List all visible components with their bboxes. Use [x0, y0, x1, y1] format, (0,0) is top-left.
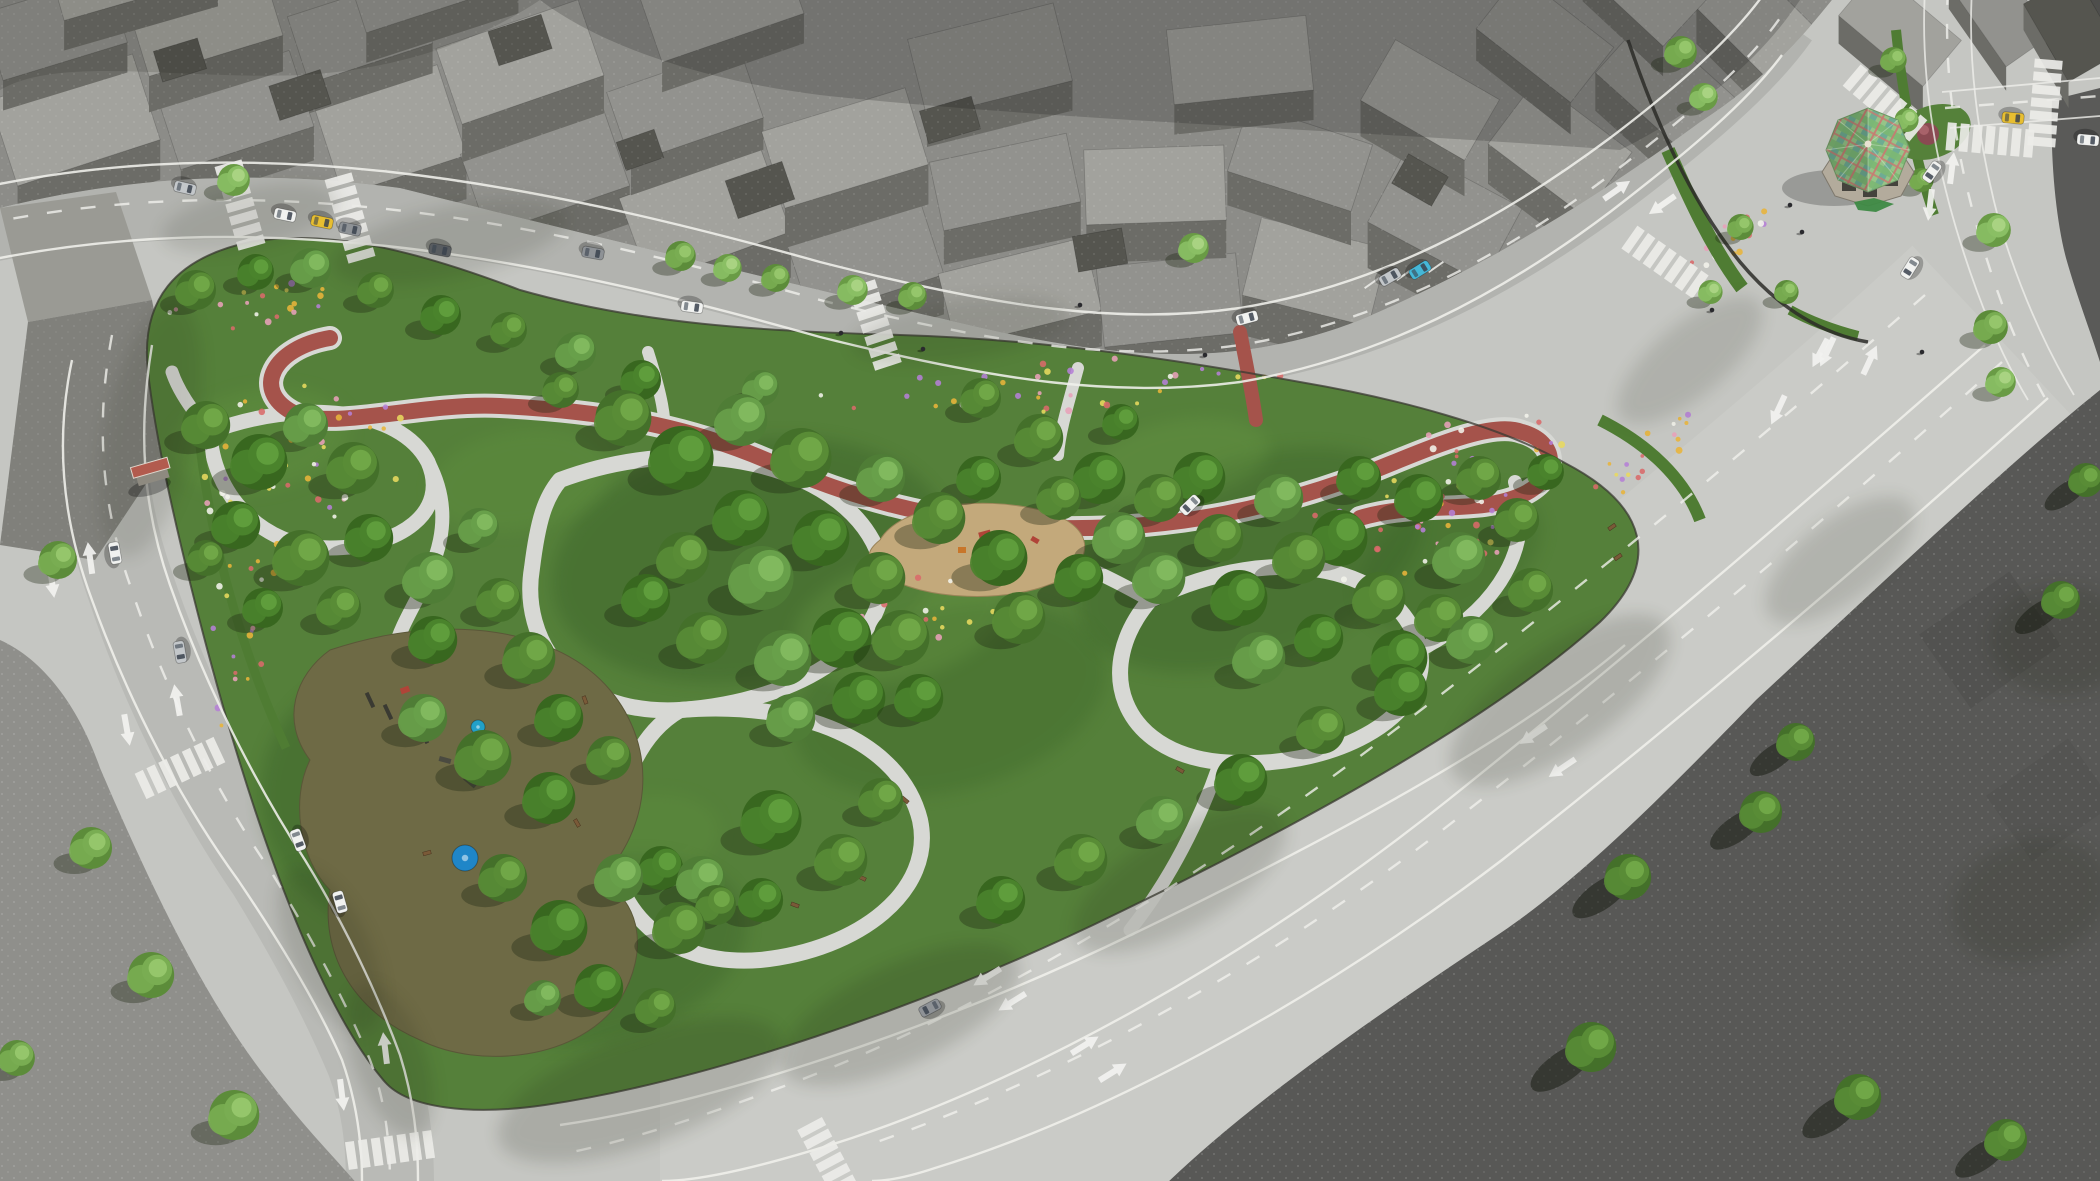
flower — [243, 399, 247, 403]
flower — [312, 462, 316, 466]
tree-highlight — [936, 500, 957, 521]
flower — [1620, 477, 1625, 482]
tree-highlight — [789, 701, 808, 720]
flower — [935, 634, 942, 641]
flower — [1614, 473, 1618, 477]
tree-highlight — [477, 514, 493, 530]
flower — [1672, 422, 1676, 426]
flower — [320, 287, 324, 291]
flower — [932, 617, 937, 622]
tree-highlight — [758, 556, 784, 582]
flower — [1608, 462, 1612, 466]
tree-highlight — [851, 280, 863, 292]
tree-highlight — [337, 593, 355, 611]
flower — [1761, 208, 1767, 214]
tree-highlight — [1277, 481, 1296, 500]
umbrella-top — [462, 855, 469, 862]
flower — [1446, 479, 1452, 485]
flower — [1041, 410, 1045, 414]
car-windshield — [2090, 136, 2095, 144]
flower — [1036, 395, 1040, 399]
flower — [202, 474, 208, 480]
flower — [940, 606, 944, 610]
tree-highlight — [1119, 409, 1133, 423]
tree-highlight — [204, 408, 223, 427]
tree-highlight — [759, 885, 777, 903]
tree-highlight — [1256, 640, 1277, 661]
tree-highlight — [421, 701, 440, 720]
flower — [1402, 571, 1407, 576]
tree-highlight — [979, 384, 995, 400]
tree-highlight — [714, 891, 730, 907]
tree-highlight — [304, 410, 322, 428]
flower — [225, 494, 230, 499]
tree-highlight — [1077, 561, 1096, 580]
tree-highlight — [254, 259, 268, 273]
tree-highlight — [898, 618, 920, 640]
flower — [1015, 393, 1021, 399]
tree-highlight — [298, 538, 320, 560]
flower — [1426, 432, 1432, 438]
flower — [368, 425, 372, 429]
pedestrian-body — [1710, 308, 1715, 313]
flower — [1391, 478, 1396, 483]
flower — [1454, 449, 1458, 453]
flower — [245, 301, 249, 305]
aerial-render — [0, 0, 2100, 1181]
flower — [1038, 391, 1042, 395]
flower — [291, 309, 296, 314]
tree-highlight — [1016, 600, 1037, 621]
flower — [1200, 367, 1204, 371]
tree-highlight — [977, 463, 995, 481]
flower — [1420, 527, 1425, 532]
flower — [322, 445, 326, 449]
flower — [1312, 513, 1318, 519]
flower — [915, 575, 921, 581]
tree-highlight — [309, 254, 325, 270]
tree-highlight — [1376, 580, 1397, 601]
tree-highlight — [1192, 238, 1204, 250]
flower — [1067, 367, 1074, 374]
tree-highlight — [838, 842, 859, 863]
tree-highlight — [1157, 481, 1176, 500]
tree-highlight — [89, 833, 106, 850]
flower — [852, 406, 856, 410]
flower — [1455, 454, 1459, 458]
flower — [1112, 356, 1118, 362]
tree-highlight — [639, 366, 655, 382]
tree-highlight — [1999, 372, 2011, 384]
pavilion-finial — [1865, 141, 1872, 148]
flower — [334, 396, 339, 401]
tree-highlight — [546, 780, 567, 801]
tree-highlight — [1336, 518, 1358, 540]
umbrella-top — [476, 725, 480, 729]
flower — [933, 404, 938, 409]
tree-highlight — [1236, 578, 1258, 600]
tree-highlight — [999, 883, 1018, 902]
flower — [1758, 220, 1764, 226]
flower — [316, 304, 320, 308]
tree-highlight — [798, 437, 822, 461]
flower — [207, 508, 214, 515]
flower — [1645, 430, 1651, 436]
flower — [336, 414, 342, 420]
flower — [1341, 576, 1347, 582]
flower — [1423, 559, 1428, 564]
tree-highlight — [541, 985, 555, 999]
flower — [265, 318, 272, 325]
tree-highlight — [738, 498, 760, 520]
tree-highlight — [597, 971, 616, 990]
tree-highlight — [234, 508, 253, 527]
flower — [1685, 412, 1691, 418]
flower — [237, 402, 243, 408]
flower — [1068, 393, 1072, 397]
tree-highlight — [738, 402, 759, 423]
flower — [305, 475, 311, 481]
flower — [1162, 379, 1168, 385]
tree-highlight — [917, 681, 936, 700]
tree-highlight — [1156, 560, 1177, 581]
render-stage — [0, 0, 2100, 1181]
pedestrian-body — [1800, 230, 1805, 235]
tree-highlight — [879, 461, 898, 480]
tree-highlight — [1296, 540, 1317, 561]
tree-highlight — [680, 540, 701, 561]
flower — [1449, 510, 1455, 516]
tree-highlight — [204, 545, 218, 559]
flower — [1593, 484, 1598, 489]
tree-highlight — [256, 442, 278, 464]
tree-highlight — [1679, 41, 1692, 54]
tree-highlight — [620, 398, 642, 420]
tree-highlight — [1589, 1030, 1609, 1050]
tree-highlight — [1417, 481, 1436, 500]
flower — [1640, 469, 1645, 474]
tree-highlight — [1437, 601, 1456, 620]
flower — [275, 314, 280, 319]
tree-highlight — [780, 638, 802, 660]
flower — [233, 671, 237, 675]
flower — [1640, 454, 1644, 458]
flower — [1378, 527, 1383, 532]
tree-highlight — [879, 785, 897, 803]
flower — [1385, 495, 1389, 499]
tree-highlight — [607, 743, 625, 761]
tree-highlight — [644, 581, 663, 600]
flower — [233, 677, 238, 682]
flower — [1536, 419, 1541, 424]
tree-highlight — [1477, 463, 1495, 481]
flower — [232, 655, 236, 659]
flower — [1430, 445, 1437, 452]
tree-highlight — [2084, 468, 2098, 482]
tree-highlight — [1992, 218, 2006, 232]
flower — [1135, 401, 1139, 405]
tree-highlight — [700, 620, 721, 641]
flower — [917, 375, 923, 381]
flower — [924, 617, 929, 622]
flower — [1672, 432, 1677, 437]
tree-highlight — [1759, 797, 1776, 814]
tree-highlight — [1469, 623, 1488, 642]
flower — [1676, 437, 1681, 442]
flower — [332, 514, 336, 518]
car-windshield — [2015, 114, 2020, 122]
flower — [397, 415, 404, 422]
tree-highlight — [774, 268, 785, 279]
flower — [327, 505, 332, 510]
flower — [317, 293, 323, 299]
flower — [348, 412, 352, 416]
tree-highlight — [559, 377, 573, 391]
tree-highlight — [1739, 218, 1749, 228]
tree-highlight — [367, 521, 386, 540]
tree-highlight — [1785, 284, 1795, 294]
tree-highlight — [1116, 520, 1137, 541]
tree-highlight — [194, 276, 210, 292]
flower — [247, 632, 254, 639]
flower — [1621, 490, 1625, 494]
flower — [258, 661, 264, 667]
flower — [1704, 262, 1710, 268]
tree-highlight — [1057, 483, 1075, 501]
car-rear-window — [2080, 135, 2085, 143]
flower — [383, 404, 388, 409]
flower — [204, 500, 210, 506]
flower — [935, 380, 941, 386]
flower — [1558, 441, 1565, 448]
flower — [1000, 380, 1005, 385]
tree-highlight — [1159, 803, 1178, 822]
tree-highlight — [818, 518, 840, 540]
flower — [1723, 224, 1727, 228]
tree-highlight — [1515, 505, 1533, 523]
tree-highlight — [676, 910, 697, 931]
tree-highlight — [1456, 540, 1477, 561]
tree-highlight — [480, 738, 502, 760]
flower — [1636, 475, 1641, 480]
flower — [904, 394, 909, 399]
tree-highlight — [1989, 315, 2003, 329]
tree-highlight — [1544, 459, 1558, 473]
flower — [1168, 374, 1173, 379]
flower — [1626, 473, 1630, 477]
flower — [940, 625, 945, 630]
tree-highlight — [726, 258, 737, 269]
tree-highlight — [1096, 460, 1117, 481]
tree-highlight — [759, 375, 773, 389]
flower — [254, 312, 258, 316]
tree-highlight — [439, 301, 455, 317]
tree-highlight — [2004, 1125, 2021, 1142]
flower — [1504, 493, 1508, 497]
tree-highlight — [996, 538, 1018, 560]
flower — [1489, 508, 1495, 514]
tree-highlight — [856, 680, 877, 701]
flower — [1415, 524, 1420, 529]
flower — [819, 393, 823, 397]
tree-highlight — [350, 450, 371, 471]
tree-highlight — [574, 338, 590, 354]
tree-highlight — [149, 959, 167, 977]
flower — [1676, 447, 1683, 454]
pedestrian-body — [921, 347, 926, 352]
flower — [1684, 421, 1688, 425]
flower — [260, 293, 265, 298]
tree-highlight — [911, 286, 922, 297]
flower — [1375, 547, 1380, 552]
flower — [1065, 407, 1072, 414]
pedestrian-body — [1788, 203, 1793, 208]
flower — [1158, 389, 1162, 393]
flower — [381, 426, 385, 430]
flower — [1624, 462, 1629, 467]
tree-highlight — [1709, 284, 1719, 294]
flower — [1525, 414, 1529, 418]
tree-highlight — [497, 585, 515, 603]
flower — [1736, 249, 1743, 256]
tree-highlight — [431, 623, 450, 642]
flower — [218, 302, 224, 308]
flower — [1216, 371, 1220, 375]
tree-highlight — [1396, 638, 1418, 660]
tree-highlight — [1398, 672, 1419, 693]
flower — [216, 583, 223, 590]
flower — [1035, 374, 1041, 380]
tree-highlight — [699, 863, 718, 882]
tree-highlight — [678, 436, 704, 462]
tree-highlight — [556, 908, 578, 930]
flower — [285, 483, 290, 488]
tree-highlight — [526, 640, 547, 661]
tree-highlight — [1905, 112, 1915, 122]
car-rear-window — [2005, 113, 2010, 121]
pedestrian-body — [1920, 350, 1925, 355]
flower — [1040, 361, 1047, 368]
tree-highlight — [659, 853, 677, 871]
flower — [1458, 427, 1464, 433]
tree-highlight — [1078, 842, 1099, 863]
flower — [222, 443, 228, 449]
tree-highlight — [1626, 861, 1644, 879]
tree-highlight — [1794, 729, 1809, 744]
flower — [1678, 417, 1682, 421]
tree-highlight — [1238, 762, 1259, 783]
tree-highlight — [876, 560, 897, 581]
tree-highlight — [1319, 713, 1338, 732]
tree-highlight — [2059, 587, 2074, 602]
flower — [1445, 523, 1450, 528]
tree-highlight — [1702, 87, 1713, 98]
tree-highlight — [1856, 1081, 1874, 1099]
play-equipment — [958, 547, 966, 553]
flower — [224, 593, 229, 598]
tree-highlight — [374, 277, 388, 291]
flower — [246, 677, 250, 681]
tree-highlight — [768, 799, 792, 823]
tree-highlight — [557, 701, 576, 720]
tree-highlight — [1892, 51, 1902, 61]
flower — [1549, 441, 1553, 445]
flower — [231, 326, 235, 330]
tree-highlight — [501, 861, 520, 880]
flower — [1444, 421, 1451, 428]
pedestrian-body — [1078, 303, 1083, 308]
tree-highlight — [56, 547, 71, 562]
flower — [1044, 368, 1050, 374]
tree-highlight — [15, 1045, 29, 1059]
flower — [220, 724, 224, 728]
flower — [302, 384, 307, 389]
flower — [1494, 550, 1499, 555]
tree-highlight — [838, 617, 862, 641]
flower — [249, 566, 254, 571]
tree-highlight — [507, 317, 521, 331]
tree-highlight — [1317, 621, 1336, 640]
flower — [1172, 372, 1179, 379]
flower — [291, 301, 297, 307]
flower — [967, 619, 973, 625]
flower — [951, 398, 957, 404]
flower — [1473, 522, 1480, 529]
flower — [1235, 374, 1240, 379]
flower — [1451, 461, 1456, 466]
tree-highlight — [232, 169, 245, 182]
pedestrian-body — [1203, 353, 1208, 358]
pedestrian-body — [839, 331, 844, 336]
tree-highlight — [679, 246, 691, 258]
tree-highlight — [1037, 421, 1056, 440]
tree-highlight — [261, 594, 277, 610]
tree-highlight — [426, 560, 447, 581]
tree-highlight — [232, 1098, 252, 1118]
tree-highlight — [1196, 460, 1217, 481]
flower — [256, 559, 260, 563]
tree-highlight — [654, 994, 670, 1010]
tree-highlight — [1217, 521, 1236, 540]
flower — [259, 409, 266, 416]
tree-highlight — [1529, 575, 1547, 593]
flower — [1104, 402, 1111, 409]
flower — [228, 564, 232, 568]
tree-highlight — [617, 861, 636, 880]
flower — [211, 626, 216, 631]
flower — [923, 608, 929, 614]
flower — [393, 476, 399, 482]
tree-highlight — [1357, 463, 1375, 481]
